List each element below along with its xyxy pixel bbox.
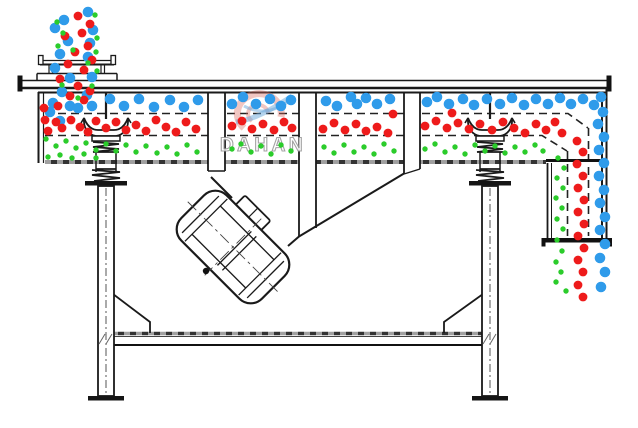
right-brace: [444, 294, 483, 333]
particle-dot: [193, 95, 204, 106]
frame-braces: [113, 294, 483, 333]
particle-dot: [600, 212, 611, 223]
particle-dot: [579, 148, 588, 157]
particle-dot: [563, 288, 568, 293]
particle-dot: [432, 92, 443, 103]
particle-dot: [63, 138, 68, 143]
particle-dot: [361, 144, 366, 149]
particle-dot: [465, 125, 474, 134]
particle-dot: [192, 125, 201, 134]
particle-dot: [288, 124, 297, 133]
particle-dot: [152, 116, 161, 125]
particle-dot: [543, 99, 554, 110]
particle-dot: [555, 93, 566, 104]
particle-dot: [488, 126, 497, 135]
particle-dot: [560, 226, 565, 231]
particle-dot: [599, 132, 610, 143]
particle-dot: [373, 123, 382, 132]
particle-dot: [532, 120, 541, 129]
particle-dot: [259, 120, 268, 129]
particle-dot: [589, 100, 600, 111]
particle-dot: [482, 148, 487, 153]
particle-dot: [371, 151, 376, 156]
particle-dot: [554, 237, 559, 242]
left-brace: [113, 294, 150, 333]
diagram-canvas: DAHAN ®: [0, 0, 638, 428]
particle-dot: [599, 185, 610, 196]
particle-dot: [319, 125, 328, 134]
particle-dot: [532, 142, 537, 147]
particle-dot: [143, 143, 148, 148]
particle-dot: [559, 205, 564, 210]
particle-dot: [454, 119, 463, 128]
particle-dot: [248, 149, 253, 154]
particle-dot: [89, 83, 94, 88]
particle-dot: [421, 122, 430, 131]
particle-dot: [122, 126, 131, 135]
particle-dot: [80, 66, 89, 75]
particle-dot: [507, 93, 518, 104]
particle-dot: [60, 30, 65, 35]
particle-dot: [432, 141, 437, 146]
particle-dot: [182, 118, 191, 127]
particle-dot: [540, 148, 545, 153]
particle-dot: [573, 160, 582, 169]
particle-dot: [50, 23, 61, 34]
particle-dot: [422, 97, 433, 108]
particle-dot: [579, 268, 588, 277]
particle-dot: [265, 94, 276, 105]
particle-dot: [93, 155, 98, 160]
particle-dot: [578, 94, 589, 105]
particle-dot: [227, 99, 238, 110]
particle-dot: [194, 149, 199, 154]
particle-dot: [94, 68, 99, 73]
particle-dot: [81, 151, 86, 156]
particle-dot: [391, 148, 396, 153]
particle-dot: [502, 150, 507, 155]
particle-dot: [288, 148, 293, 153]
particle-dot: [554, 216, 559, 221]
particle-dot: [362, 127, 371, 136]
particle-dot: [558, 129, 567, 138]
particle-dot: [574, 281, 583, 290]
particle-dot: [341, 142, 346, 147]
particle-dot: [560, 185, 565, 190]
particle-dot: [600, 239, 611, 250]
partition-3: [404, 92, 420, 174]
particle-dot: [228, 122, 237, 131]
particle-dot: [84, 128, 93, 137]
particle-dot: [384, 129, 393, 138]
particle-dot: [280, 118, 289, 127]
particle-dot: [65, 73, 76, 84]
particle-dot: [531, 94, 542, 105]
particle-dot: [593, 119, 604, 130]
particle-dot: [278, 142, 283, 147]
particle-dot: [80, 96, 89, 105]
particle-dot: [123, 142, 128, 147]
particle-dot: [44, 127, 53, 136]
particle-dot: [69, 155, 74, 160]
particle-dot: [149, 102, 160, 113]
particle-dot: [554, 175, 559, 180]
particle-dot: [142, 127, 151, 136]
particle-dot: [59, 15, 70, 26]
motor-bolt: [203, 268, 209, 274]
particle-dot: [448, 109, 457, 118]
particle-dot: [566, 99, 577, 110]
particle-dot: [64, 60, 73, 69]
particle-dot: [492, 143, 497, 148]
particle-dot: [238, 92, 249, 103]
particle-dot: [495, 99, 506, 110]
particle-dot: [164, 144, 169, 149]
particle-dot: [276, 101, 287, 112]
particle-dot: [542, 126, 551, 135]
particle-dot: [86, 20, 95, 29]
particle-dot: [551, 118, 560, 127]
particle-dot: [268, 151, 273, 156]
particle-dot: [574, 184, 583, 193]
particle-dot: [385, 94, 396, 105]
particle-dot: [561, 165, 566, 170]
base-frame: [100, 294, 497, 345]
particle-dot: [67, 116, 76, 125]
particle-dot: [179, 102, 190, 113]
particle-dot: [238, 141, 243, 146]
particle-dot: [248, 125, 257, 134]
particle-dot: [519, 100, 530, 111]
particle-dot: [85, 60, 90, 65]
partition-2: [299, 92, 316, 237]
particle-dot: [238, 117, 247, 126]
particle-dot: [57, 152, 62, 157]
particle-dot: [87, 101, 98, 112]
particle-dot: [83, 140, 88, 145]
particle-dot: [102, 124, 111, 133]
particle-dot: [510, 124, 519, 133]
particle-dot: [372, 99, 383, 110]
particle-dot: [579, 293, 588, 302]
particle-dot: [45, 154, 50, 159]
particle-dot: [40, 104, 49, 113]
particle-dot: [574, 208, 583, 217]
particle-dot: [76, 123, 85, 132]
particle-dot: [341, 126, 350, 135]
particle-dot: [580, 220, 589, 229]
particle-dot: [54, 19, 59, 24]
particle-dot: [389, 110, 398, 119]
particle-dot: [184, 142, 189, 147]
particle-dot: [422, 146, 427, 151]
particle-dot: [70, 47, 75, 52]
particle-dot: [53, 143, 58, 148]
particle-dot: [579, 172, 588, 181]
particle-dot: [499, 118, 508, 127]
particle-dot: [559, 248, 564, 253]
particle-dot: [162, 123, 171, 132]
particle-dot: [165, 95, 176, 106]
particle-dot: [595, 253, 606, 264]
particle-dot: [56, 75, 65, 84]
particle-dot: [229, 146, 234, 151]
particle-dot: [93, 49, 98, 54]
particle-dot: [553, 259, 558, 264]
particle-dot: [361, 93, 372, 104]
particle-dot: [573, 137, 582, 146]
particle-dot: [321, 96, 332, 107]
particle-dot: [103, 141, 108, 146]
box-bottom: [45, 161, 607, 163]
particle-dot: [580, 244, 589, 253]
left-support: [81, 92, 131, 401]
particle-dot: [270, 126, 279, 135]
particle-dot: [595, 198, 606, 209]
particle-dot: [332, 101, 343, 112]
particle-dot: [286, 95, 297, 106]
particle-dot: [555, 155, 560, 160]
particle-dot: [119, 101, 130, 112]
particle-dot: [258, 143, 263, 148]
particle-dot: [75, 95, 80, 100]
particle-dot: [92, 117, 101, 126]
top-rail: [18, 76, 612, 93]
particle-dot: [331, 150, 336, 155]
particle-dot: [251, 99, 262, 110]
particle-dot: [462, 151, 467, 156]
particle-dot: [59, 82, 64, 87]
particle-dot: [41, 116, 50, 125]
particle-dot: [469, 100, 480, 111]
particle-dot: [521, 129, 530, 138]
base-beam: [100, 334, 497, 346]
particle-dot: [55, 49, 66, 60]
vibrating-screen-diagram: DAHAN ®: [0, 0, 638, 428]
particle-dot: [553, 279, 558, 284]
particle-dot: [352, 99, 363, 110]
particle-dot: [432, 117, 441, 126]
particle-dot: [172, 128, 181, 137]
particle-dot: [558, 269, 563, 274]
particle-dot: [133, 149, 138, 154]
particle-dot: [321, 144, 326, 149]
particle-dot: [580, 196, 589, 205]
particle-dot: [452, 144, 457, 149]
particle-dot: [598, 107, 609, 118]
particle-dot: [352, 120, 361, 129]
particle-dot: [92, 12, 97, 17]
particle-dot: [43, 136, 48, 141]
particle-dot: [594, 145, 605, 156]
particle-dot: [112, 118, 121, 127]
particle-dot: [154, 150, 159, 155]
particle-dot: [174, 151, 179, 156]
particle-dot: [472, 142, 477, 147]
right-support: [465, 92, 515, 401]
particle-dot: [595, 225, 606, 236]
partition-1: [208, 92, 225, 171]
particle-dot: [105, 94, 116, 105]
particle-dot: [94, 35, 99, 40]
particle-dot: [512, 144, 517, 149]
particle-dot: [442, 149, 447, 154]
feed-inlet: [37, 56, 117, 81]
particle-dot: [351, 149, 356, 154]
particle-dot: [330, 119, 339, 128]
particle-dot: [476, 120, 485, 129]
particle-dot: [574, 256, 583, 265]
particle-dot: [50, 63, 61, 74]
particle-dot: [458, 94, 469, 105]
particle-dot: [599, 158, 610, 169]
particle-dot: [596, 92, 607, 103]
particle-dot: [553, 195, 558, 200]
particle-dot: [84, 42, 93, 51]
particle-dot: [73, 103, 84, 114]
particle-dot: [73, 145, 78, 150]
particle-dot: [113, 148, 118, 153]
particle-dot: [522, 149, 527, 154]
particle-dot: [132, 121, 141, 130]
particle-dot: [482, 94, 493, 105]
particle-dot: [381, 141, 386, 146]
particle-dot: [74, 82, 83, 91]
particle-dot: [596, 282, 607, 293]
particle-dot: [55, 43, 60, 48]
particle-dot: [93, 147, 98, 152]
particle-dot: [83, 7, 94, 18]
particle-dot: [600, 267, 611, 278]
particle-dot: [134, 94, 145, 105]
particle-dot: [594, 171, 605, 182]
particle-dot: [444, 99, 455, 110]
particle-dot: [74, 12, 83, 21]
particle-dot: [443, 124, 452, 133]
particle-dot: [574, 232, 583, 241]
particle-dot: [78, 29, 87, 38]
particle-dot: [54, 102, 63, 111]
particle-dot: [58, 124, 67, 133]
particle-dot: [66, 92, 75, 101]
